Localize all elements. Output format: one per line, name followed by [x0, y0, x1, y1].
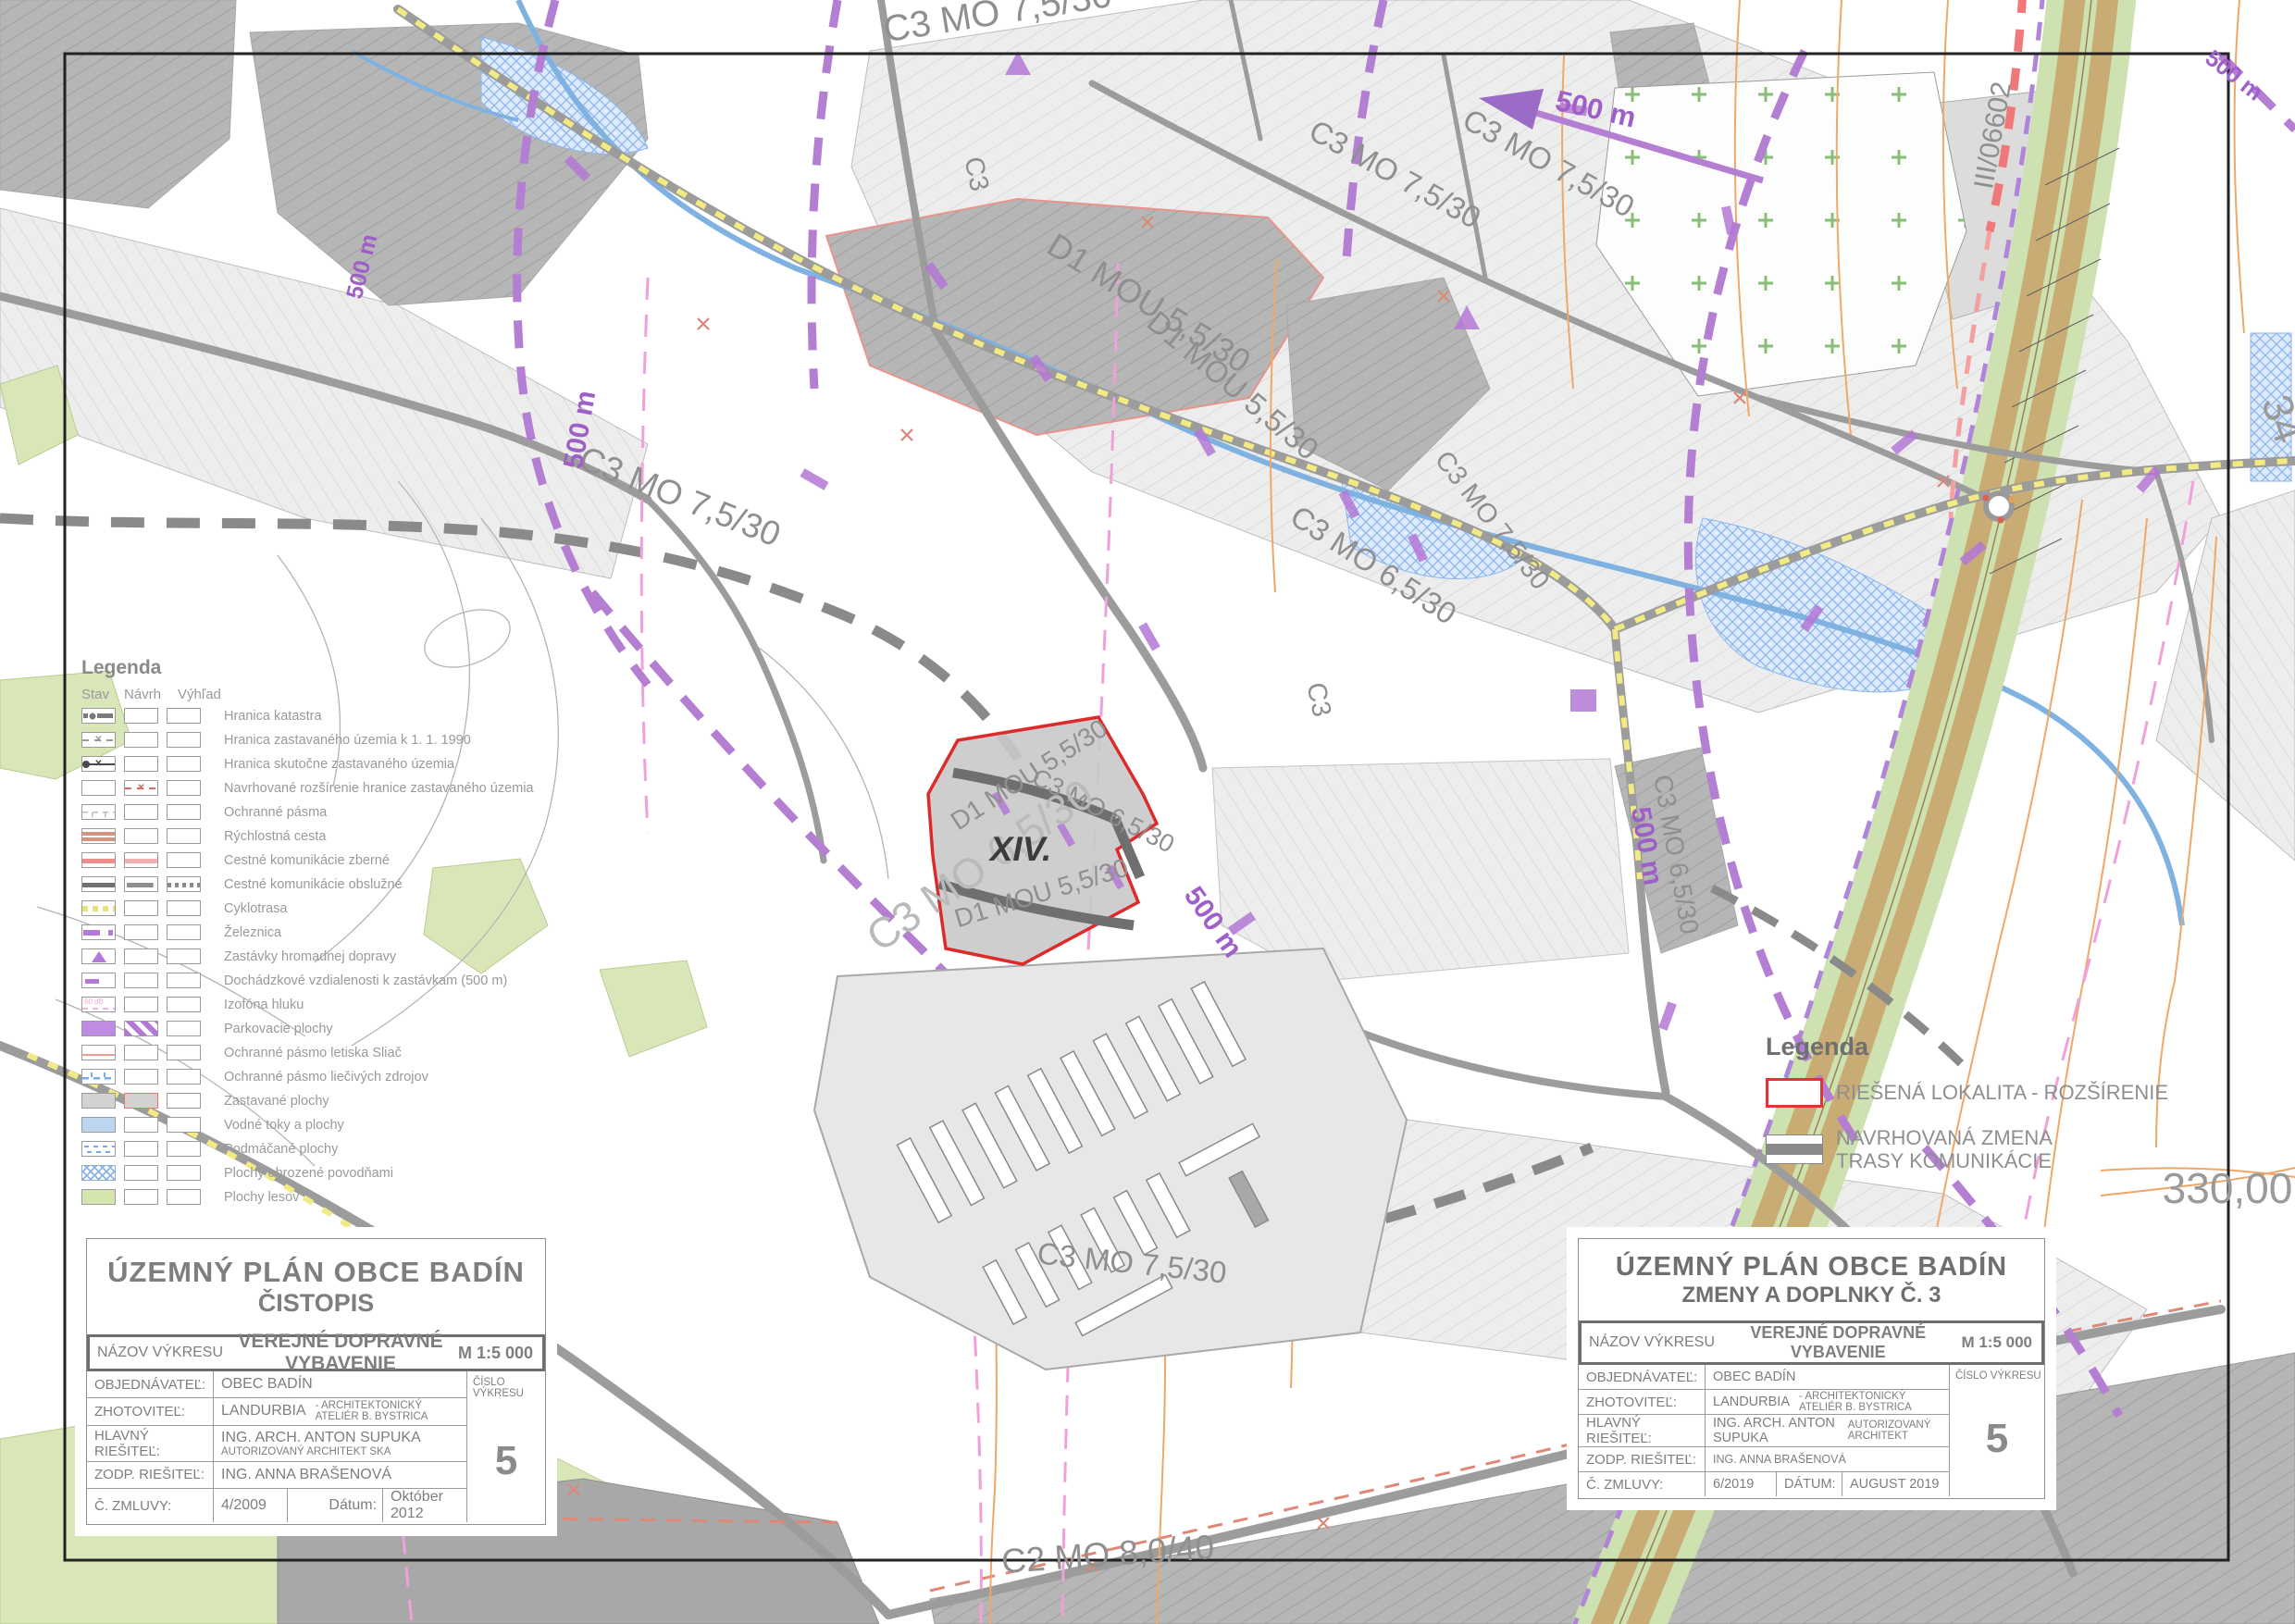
legend-swatch-empty: [167, 804, 201, 820]
legend-swatch-empty: [167, 948, 201, 964]
parking-area: [1570, 689, 1596, 712]
chief-designer-detail: AUTORIZOVANÝ ARCHITEKT SKA: [221, 1446, 391, 1457]
legend-item: Ochranné pásmo liečivých zdrojov: [81, 1069, 526, 1085]
legend-item-label: Plochy ohrozené povodňami: [224, 1166, 393, 1181]
legend-swatch-empty: [167, 1093, 201, 1109]
parking-areas-proposed-icon: [124, 1021, 158, 1036]
walking-distance-icon: [81, 973, 116, 988]
proposed-route-change-icon: [1766, 1134, 1823, 1164]
legend-item-label: Zastávky hromadnej dopravy: [224, 949, 396, 964]
legend-item-label: RIEŠENÁ LOKALITA - ROZŠÍRENIE: [1836, 1081, 2168, 1104]
legend-item-label: Ochranné pásma: [224, 805, 327, 820]
legend-swatch-empty: [124, 973, 158, 988]
legend-col-navrh: Návrh: [124, 687, 178, 702]
legend-swatch-empty: [167, 924, 201, 940]
legend-swatch-empty: [124, 924, 158, 940]
collector-roads-proposed-icon: [124, 852, 158, 868]
legend-item-label: Hranica katastra: [224, 709, 322, 724]
table-row: HLAVNÝ RIEŠITEĽ: ING. ARCH. ANTON SUPUKA…: [87, 1425, 466, 1461]
legend-swatch-empty: [167, 1141, 201, 1157]
plan-subtitle: ZMENY A DOPLNKY Č. 3: [1579, 1283, 2044, 1308]
legend-item: Vodné toky a plochy: [81, 1117, 526, 1133]
drawing-number-label: ČÍSLO VÝKRESU: [467, 1371, 545, 1399]
legend-item-label: Izofóna hluku: [224, 998, 304, 1012]
row-value: ING. ANNA BRAŠENOVÁ: [213, 1462, 466, 1488]
transit-stops-icon: [81, 948, 116, 964]
legend-swatch-empty: [124, 756, 158, 772]
row-label: ZODP. RIEŠITEĽ:: [87, 1467, 213, 1482]
legend-item-label: Dochádzkové vzdialenosti k zastávkam (50…: [224, 973, 507, 988]
legend-item: Zastavané plochy: [81, 1093, 526, 1109]
drawing-name-label: NÁZOV VÝKRESU: [90, 1345, 223, 1361]
cycle-route-icon: [81, 900, 116, 916]
table-row: Č. ZMLUVY: 6/2019 DÁTUM: AUGUST 2019: [1579, 1471, 1949, 1496]
legend-swatch-empty: [167, 780, 201, 796]
responsible-designer-name: ING. ANNA BRAŠENOVÁ: [221, 1467, 391, 1483]
legend-item: Dochádzkové vzdialenosti k zastávkam (50…: [81, 973, 526, 988]
forest-areas-icon: [81, 1189, 116, 1205]
legend-swatch-empty: [167, 1117, 201, 1133]
legend-swatch-empty: [167, 708, 201, 724]
table-row: ZHOTOVITEĽ: LANDURBIA- ARCHITEKTONICKÝ A…: [87, 1397, 466, 1424]
legend-item: Ochranné pásmo letiska Sliač: [81, 1045, 526, 1060]
legend-item-label: Podmáčané plochy: [224, 1142, 338, 1157]
railway-icon: [81, 924, 116, 940]
legend-item: Cestné komunikácie zberné: [81, 852, 526, 868]
legend-item-label: Cestné komunikácie zberné: [224, 853, 390, 868]
legend-swatch-empty: [124, 900, 158, 916]
table-row: ZODP. RIEŠITEĽ: ING. ANNA BRAŠENOVÁ: [1579, 1446, 1949, 1471]
drawing-name-value: VEREJNÉ DOPRAVNÉ VYBAVENIE: [223, 1331, 458, 1375]
legend-left: Legenda Stav Návrh Výhľad Hranica katast…: [81, 657, 526, 1213]
waterlogged-areas-icon: [81, 1141, 116, 1157]
legend-item-label: Parkovacie plochy: [224, 1022, 333, 1036]
legend-item: Cyklotrasa: [81, 900, 526, 916]
legend-swatch-empty: [167, 1189, 201, 1205]
legend-item-label: Hranica skutočne zastavaného územia: [224, 757, 454, 772]
builtup-areas-proposed-icon: [124, 1093, 158, 1109]
row-value: ING. ARCH. ANTON SUPUKA AUTORIZOVANÝ ARC…: [213, 1426, 466, 1461]
noise-isophone-icon: 60 dB: [81, 997, 116, 1012]
legend-item: Zastávky hromadnej dopravy: [81, 948, 526, 964]
legend-item-label: NAVRHOVANÁ ZMENA TRASY KOMUNIKÁCIE: [1836, 1126, 2053, 1173]
row-value: OBEC BADÍN: [1705, 1365, 1949, 1389]
airport-protection-zone-icon: [81, 1045, 116, 1060]
date-label: DÁTUM:: [1776, 1472, 1842, 1496]
responsible-designer-name: ING. ANNA BRAŠENOVÁ: [1713, 1453, 1846, 1466]
row-label: ZHOTOVITEĽ:: [87, 1404, 213, 1419]
legend-item-line1: NAVRHOVANÁ ZMENA: [1836, 1126, 2053, 1149]
legend-item: Parkovacie plochy: [81, 1021, 526, 1036]
water-areas-icon: [81, 1117, 116, 1133]
plan-title: ÚZEMNÝ PLÁN OBCE BADÍN: [87, 1256, 545, 1289]
date-value: AUGUST 2019: [1842, 1472, 1949, 1496]
plan-title: ÚZEMNÝ PLÁN OBCE BADÍN: [1579, 1252, 2044, 1283]
legend-swatch-empty: [124, 1165, 158, 1181]
date-value: Október 2012: [382, 1489, 466, 1522]
legend-swatch-empty: [167, 1021, 201, 1036]
legend-item-label: Cyklotrasa: [224, 901, 288, 916]
row-label: ZHOTOVITEĽ:: [1579, 1395, 1705, 1410]
service-roads-icon: [81, 876, 116, 892]
client-name: OBEC BADÍN: [1713, 1370, 1795, 1384]
scale-value: M 1:5 000: [1961, 1333, 2041, 1352]
drawing-number-label: ČÍSLO VÝKRESU: [1950, 1365, 2044, 1382]
table-row: OBJEDNÁVATEĽ: OBEC BADÍN: [87, 1371, 466, 1397]
legend-item-label: Zastavané plochy: [224, 1094, 329, 1109]
legend-swatch-empty: [124, 804, 158, 820]
legend-swatch-empty: [167, 852, 201, 868]
legend-item: NAVRHOVANÁ ZMENA TRASY KOMUNIKÁCIE: [1766, 1126, 2191, 1173]
legend-item-line2: TRASY KOMUNIKÁCIE: [1836, 1149, 2052, 1172]
legend-title: Legenda: [1766, 1033, 2191, 1061]
legend-item-label: Rýchlostná cesta: [224, 829, 326, 844]
expressway-icon: [81, 828, 116, 844]
legend-title: Legenda: [81, 657, 526, 679]
legend-swatch-empty: [167, 756, 201, 772]
legend-right: Legenda RIEŠENÁ LOKALITA - ROZŠÍRENIE NA…: [1766, 1033, 2191, 1192]
locality-number-label: XIV.: [988, 830, 1052, 868]
legend-swatch-empty: [124, 708, 158, 724]
legend-swatch-empty: [81, 780, 116, 796]
contractor-name: LANDURBIA: [221, 1403, 306, 1419]
row-value: LANDURBIA- ARCHITEKTONICKÝ ATELIÉR B. BY…: [1705, 1390, 1949, 1414]
legend-item: Hranica zastavaného územia k 1. 1. 1990: [81, 732, 526, 748]
contract-number: 4/2009: [213, 1489, 287, 1522]
legend-swatch-empty: [124, 828, 158, 844]
table-row: HLAVNÝ RIEŠITEĽ: ING. ARCH. ANTON SUPUKA…: [1579, 1414, 1949, 1446]
legend-swatch-empty: [167, 997, 201, 1012]
solved-locality-icon: [1766, 1078, 1823, 1108]
collector-roads-icon: [81, 852, 116, 868]
legend-item: Plochy lesov: [81, 1189, 526, 1205]
row-value: ING. ARCH. ANTON SUPUKAAUTORIZOVANÝ ARCH…: [1705, 1415, 1949, 1446]
legend-item-label: Vodné toky a plochy: [224, 1118, 344, 1133]
legend-swatch-empty: [167, 973, 201, 988]
legend-item: 60 dBIzofóna hluku: [81, 997, 526, 1012]
legend-swatch-empty: [167, 1165, 201, 1181]
contractor-name: LANDURBIA: [1713, 1395, 1790, 1409]
builtup-boundary-1990-icon: [81, 732, 116, 748]
client-name: OBEC BADÍN: [221, 1376, 313, 1393]
table-row: ZHOTOVITEĽ: LANDURBIA- ARCHITEKTONICKÝ A…: [1579, 1389, 1949, 1414]
service-roads-proposed-icon: [124, 876, 158, 892]
legend-swatch-empty: [124, 1117, 158, 1133]
legend-col-stav: Stav: [81, 687, 124, 702]
noise-level-text: 60 dB: [84, 998, 104, 1006]
legend-swatch-empty: [167, 1069, 201, 1085]
drawing-name-value: VEREJNÉ DOPRAVNÉ VYBAVENIE: [1715, 1323, 1961, 1362]
row-label: OBJEDNÁVATEĽ:: [87, 1377, 213, 1393]
row-value: ING. ANNA BRAŠENOVÁ: [1705, 1447, 1949, 1471]
legend-item-label: Hranica zastavaného územia k 1. 1. 1990: [224, 733, 471, 748]
legend-swatch-empty: [167, 828, 201, 844]
legend-col-vyhlad: Výhľad: [178, 687, 235, 702]
row-label: HLAVNÝ RIEŠITEĽ:: [87, 1428, 213, 1459]
contract-label: Č. ZMLUVY:: [87, 1498, 213, 1514]
legend-item: Hranica skutočne zastavaného územia: [81, 756, 526, 772]
legend-swatch-empty: [124, 997, 158, 1012]
row-value: LANDURBIA- ARCHITEKTONICKÝ ATELIÉR B. BY…: [213, 1398, 466, 1424]
legend-item-label: Ochranné pásmo liečivých zdrojov: [224, 1070, 428, 1085]
table-row: OBJEDNÁVATEĽ: OBEC BADÍN: [1579, 1365, 1949, 1389]
date-label: Dátum:: [287, 1489, 382, 1522]
plan-subtitle: ČISTOPIS: [87, 1289, 545, 1318]
legend-swatch-empty: [124, 732, 158, 748]
legend-item: Železnica: [81, 924, 526, 940]
legend-item: Hranica katastra: [81, 708, 526, 724]
chief-designer-detail: AUTORIZOVANÝ ARCHITEKT: [1848, 1419, 1949, 1442]
legend-swatch-empty: [124, 1069, 158, 1085]
proposed-boundary-extension-icon: [124, 780, 158, 796]
row-label: OBJEDNÁVATEĽ:: [1579, 1370, 1705, 1385]
legend-swatch-empty: [124, 1045, 158, 1060]
legend-item: Ochranné pásma: [81, 804, 526, 820]
drawing-number: 5: [467, 1399, 545, 1522]
legend-item: Navrhované rozšírenie hranice zastavanéh…: [81, 780, 526, 796]
legend-item: Podmáčané plochy: [81, 1141, 526, 1157]
table-row: ZODP. RIEŠITEĽ: ING. ANNA BRAŠENOVÁ: [87, 1461, 466, 1488]
legend-item: RIEŠENÁ LOKALITA - ROZŠÍRENIE: [1766, 1078, 2191, 1108]
title-block-zmeny: ÚZEMNÝ PLÁN OBCE BADÍN ZMENY A DOPLNKY Č…: [1578, 1238, 2045, 1499]
drawing-name-label: NÁZOV VÝKRESU: [1582, 1334, 1715, 1351]
actual-builtup-boundary-icon: [81, 756, 116, 772]
scale-value: M 1:5 000: [458, 1344, 542, 1363]
table-row: Č. ZMLUVY: 4/2009 Dátum: Október 2012: [87, 1488, 466, 1522]
title-block-cistopis: ÚZEMNÝ PLÁN OBCE BADÍN ČISTOPIS NÁZOV VÝ…: [86, 1238, 546, 1525]
contract-number: 6/2019: [1705, 1472, 1776, 1496]
contractor-detail: - ARCHITEKTONICKÝ ATELIÉR B. BYSTRICA: [316, 1400, 466, 1422]
legend-swatch-empty: [167, 900, 201, 916]
parking-areas-icon: [81, 1021, 116, 1036]
legend-swatch-empty: [124, 948, 158, 964]
healing-springs-zone-icon: [81, 1069, 116, 1085]
legend-item-label: Ochranné pásmo letiska Sliač: [224, 1046, 402, 1060]
cadastre-boundary-icon: [81, 708, 116, 724]
legend-swatch-empty: [167, 732, 201, 748]
legend-item: Rýchlostná cesta: [81, 828, 526, 844]
chief-designer-name: ING. ARCH. ANTON SUPUKA: [1713, 1416, 1839, 1445]
contract-label: Č. ZMLUVY:: [1579, 1477, 1705, 1493]
legend-item-label: Železnica: [224, 925, 281, 940]
legend-swatch-empty: [124, 1141, 158, 1157]
row-value: OBEC BADÍN: [213, 1371, 466, 1397]
contractor-detail: - ARCHITEKTONICKÝ ATELIÉR B. BYSTRICA: [1799, 1391, 1949, 1413]
flood-risk-areas-icon: [81, 1165, 116, 1181]
legend-item-label: Navrhované rozšírenie hranice zastavanéh…: [224, 781, 534, 796]
legend-item: Cestné komunikácie obslužné: [81, 876, 526, 892]
plan-sheet: C3 MO 7,5/30 D1 MOU 5,5/30 C3 MO 7,5/30 …: [0, 0, 2295, 1624]
drawing-number: 5: [1950, 1382, 2044, 1496]
service-roads-outlook-icon: [167, 876, 201, 892]
legend-item-label: Cestné komunikácie obslužné: [224, 877, 403, 892]
row-label: HLAVNÝ RIEŠITEĽ:: [1579, 1415, 1705, 1446]
builtup-areas-icon: [81, 1093, 116, 1109]
protection-zones-icon: [81, 804, 116, 820]
chief-designer-name: ING. ARCH. ANTON SUPUKA: [221, 1430, 421, 1446]
legend-column-headers: Stav Návrh Výhľad: [81, 687, 526, 702]
legend-swatch-empty: [124, 1189, 158, 1205]
row-label: ZODP. RIEŠITEĽ:: [1579, 1452, 1705, 1468]
legend-swatch-empty: [167, 1045, 201, 1060]
legend-item: Plochy ohrozené povodňami: [81, 1165, 526, 1181]
legend-item-label: Plochy lesov: [224, 1190, 299, 1205]
